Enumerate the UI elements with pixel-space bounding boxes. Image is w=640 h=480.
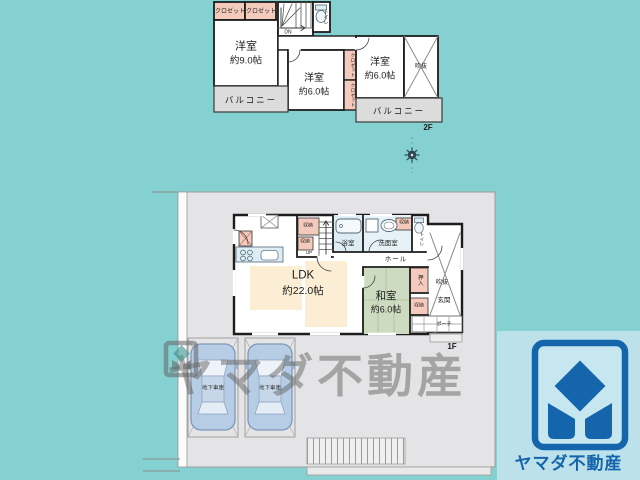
kitchen-sink-icon bbox=[261, 251, 278, 261]
washer-icon bbox=[366, 219, 378, 232]
label-void-1f: 吹抜 bbox=[436, 280, 448, 286]
label-toilet-2f: トイレ bbox=[323, 10, 328, 25]
label-room-west9-name: 洋室 bbox=[235, 42, 257, 53]
label-closet-2f-1: クロゼット bbox=[215, 9, 245, 15]
stairs-2f bbox=[278, 2, 313, 36]
label-japanese-room-name: 和室 bbox=[376, 291, 397, 302]
label-balcony-west: バルコニー bbox=[225, 96, 277, 105]
company-logo: ヤマダ不動産 bbox=[497, 331, 640, 480]
label-room-west9-size: 約9.0帖 bbox=[230, 56, 262, 66]
kitchen-counter bbox=[236, 247, 283, 262]
label-closet-2f-4: クロゼット bbox=[349, 83, 354, 107]
label-stairs-dn: DN bbox=[284, 31, 291, 36]
label-ldk-size: 約22.0帖 bbox=[282, 286, 323, 297]
room-west9 bbox=[214, 20, 278, 86]
label-entrance: 玄関 bbox=[438, 298, 451, 305]
label-storage-stairs-2: 収納 bbox=[300, 241, 310, 246]
watermark-logo-icon bbox=[163, 338, 201, 388]
label-room-east6-size: 約6.0帖 bbox=[365, 72, 396, 81]
label-hall: ホール bbox=[385, 257, 408, 264]
label-void-2f: 吹抜 bbox=[415, 64, 427, 70]
label-storage-stairs-1: 収納 bbox=[303, 225, 313, 230]
label-oshiire: 押入 bbox=[416, 275, 422, 286]
outdoor-steps bbox=[307, 438, 405, 464]
floor1-plan bbox=[233, 214, 464, 342]
label-storage-washroom: 収納 bbox=[399, 222, 409, 227]
label-japanese-room-size: 約6.0帖 bbox=[371, 306, 402, 315]
label-porch: ポーチ bbox=[436, 323, 451, 328]
watermark-text: ヤマダ不動産 bbox=[167, 340, 467, 406]
floorplan-canvas: クロゼット クロゼット DN トイレ 洋室 約9.0帖 洋室 約6.0帖 洋室 … bbox=[0, 0, 640, 480]
label-stairs-up: UP bbox=[306, 251, 312, 256]
bathtub-icon bbox=[336, 219, 361, 233]
label-floor-2f: 2F bbox=[423, 124, 432, 132]
vanity-sink-icon bbox=[381, 220, 397, 232]
north-indicator bbox=[405, 137, 420, 173]
label-toilet-1f: トイレ bbox=[418, 232, 423, 246]
watermark: ヤマダ不動産 bbox=[163, 338, 467, 406]
label-closet-2f-2: クロゼット bbox=[246, 9, 276, 15]
label-closet-2f-3: クロゼット bbox=[349, 53, 354, 77]
label-room-center6-size: 約6.0帖 bbox=[299, 88, 330, 97]
company-logo-text: ヤマダ不動産 bbox=[497, 449, 640, 474]
x-marked-box bbox=[261, 215, 278, 228]
label-room-east6-name: 洋室 bbox=[370, 58, 390, 68]
label-balcony-east: バルコニー bbox=[373, 107, 425, 116]
label-washroom: 洗面室 bbox=[378, 241, 398, 248]
label-storage-japanese: 収納 bbox=[414, 305, 424, 310]
label-ldk-name: LDK bbox=[292, 270, 314, 282]
label-room-center6-name: 洋室 bbox=[304, 74, 324, 84]
label-bath: 浴室 bbox=[342, 241, 355, 248]
